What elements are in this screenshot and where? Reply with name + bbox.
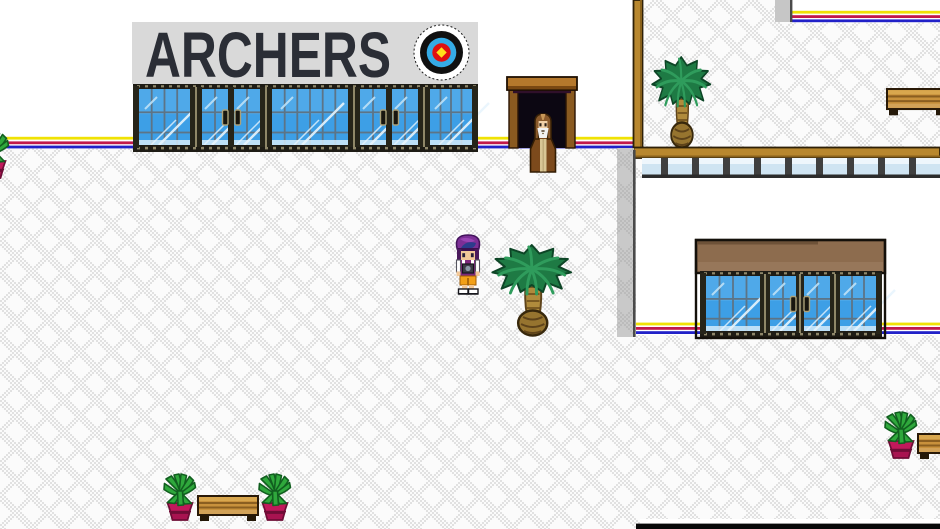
svg-text:ARCHERS: ARCHERS [145, 19, 391, 91]
